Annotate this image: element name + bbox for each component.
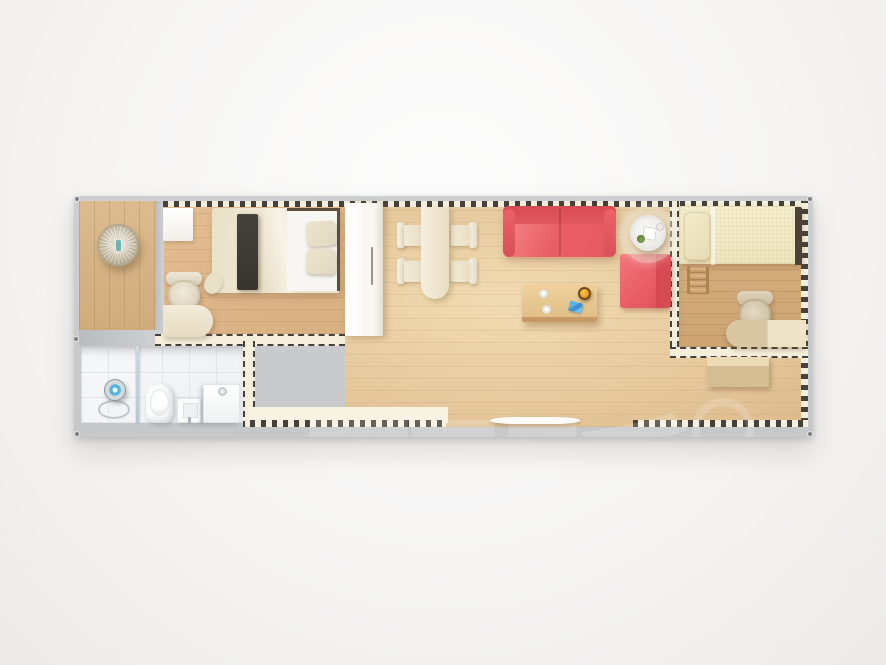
corner-screw — [808, 432, 812, 436]
round-side-table — [630, 215, 666, 251]
double-bed — [212, 208, 340, 293]
dining-table — [421, 207, 449, 299]
single-bed-pillow — [684, 212, 710, 260]
dark-throw-runner — [237, 214, 258, 290]
sofa-cushion-seam — [559, 208, 561, 255]
shower-hose — [98, 400, 130, 419]
single-bed-end-board — [795, 207, 802, 265]
ladder-rung — [690, 289, 706, 293]
red-armchair-back — [656, 254, 671, 308]
dining-chair-seat — [451, 225, 469, 246]
basin-bowl — [183, 403, 198, 418]
sofa-armrest — [503, 209, 515, 257]
plate — [539, 289, 548, 298]
shower-glass-divider — [136, 346, 139, 423]
cup — [656, 223, 664, 231]
bottom-wall-panel-edge-right — [633, 420, 808, 427]
basin-faucet — [188, 417, 191, 423]
second-bedroom-desk — [726, 320, 806, 347]
dining-chair-seat — [404, 261, 422, 282]
hanging-chair-cushion — [116, 240, 121, 251]
potted-plant — [637, 235, 645, 243]
washer-knob — [218, 387, 227, 396]
ladder-rung — [690, 282, 706, 286]
render-canvas: 配跃 — [0, 0, 886, 665]
edge-screw — [74, 337, 78, 341]
master-desk — [163, 305, 213, 337]
corner-screw — [75, 197, 79, 201]
entry-door-sill — [490, 417, 580, 424]
dining-chair-back — [469, 258, 477, 284]
single-bed — [679, 206, 801, 264]
right-wall-panel-edge — [801, 201, 808, 423]
ladder-rung — [690, 275, 706, 279]
ladder-rail — [706, 266, 709, 294]
wash-basin — [177, 398, 201, 423]
floor-plan: 配跃 — [74, 196, 813, 437]
wardrobe-handle — [371, 247, 373, 285]
low-cabinet — [707, 357, 769, 387]
fruit-bowl — [578, 287, 591, 300]
dining-chair-back — [469, 222, 477, 248]
red-sofa — [503, 206, 616, 258]
loft-ladder — [687, 266, 709, 294]
hanging-rattan-chair — [97, 224, 139, 266]
shower-fixture — [104, 379, 126, 401]
toilet — [146, 384, 173, 423]
tall-white-wardrobe — [345, 203, 383, 336]
dining-chair-seat — [404, 225, 422, 246]
bottom-wall-panel-edge-left — [250, 420, 446, 427]
bed-pillow — [305, 220, 336, 247]
corner-screw — [75, 432, 79, 436]
washing-machine — [203, 384, 240, 423]
coffee-table — [522, 284, 597, 322]
sofa-armrest — [604, 209, 616, 257]
bed-pillow — [306, 248, 337, 274]
toilet-seat — [150, 389, 169, 416]
fruit — [580, 289, 589, 298]
blue-napkins — [568, 301, 583, 314]
dining-chair-seat — [451, 261, 469, 282]
bathroom-top-wall — [79, 330, 164, 346]
master-small-cabinet — [163, 208, 193, 241]
plate — [542, 305, 551, 314]
corner-screw — [808, 197, 812, 201]
ladder-rung — [690, 268, 706, 272]
single-bed-fold — [711, 207, 715, 265]
